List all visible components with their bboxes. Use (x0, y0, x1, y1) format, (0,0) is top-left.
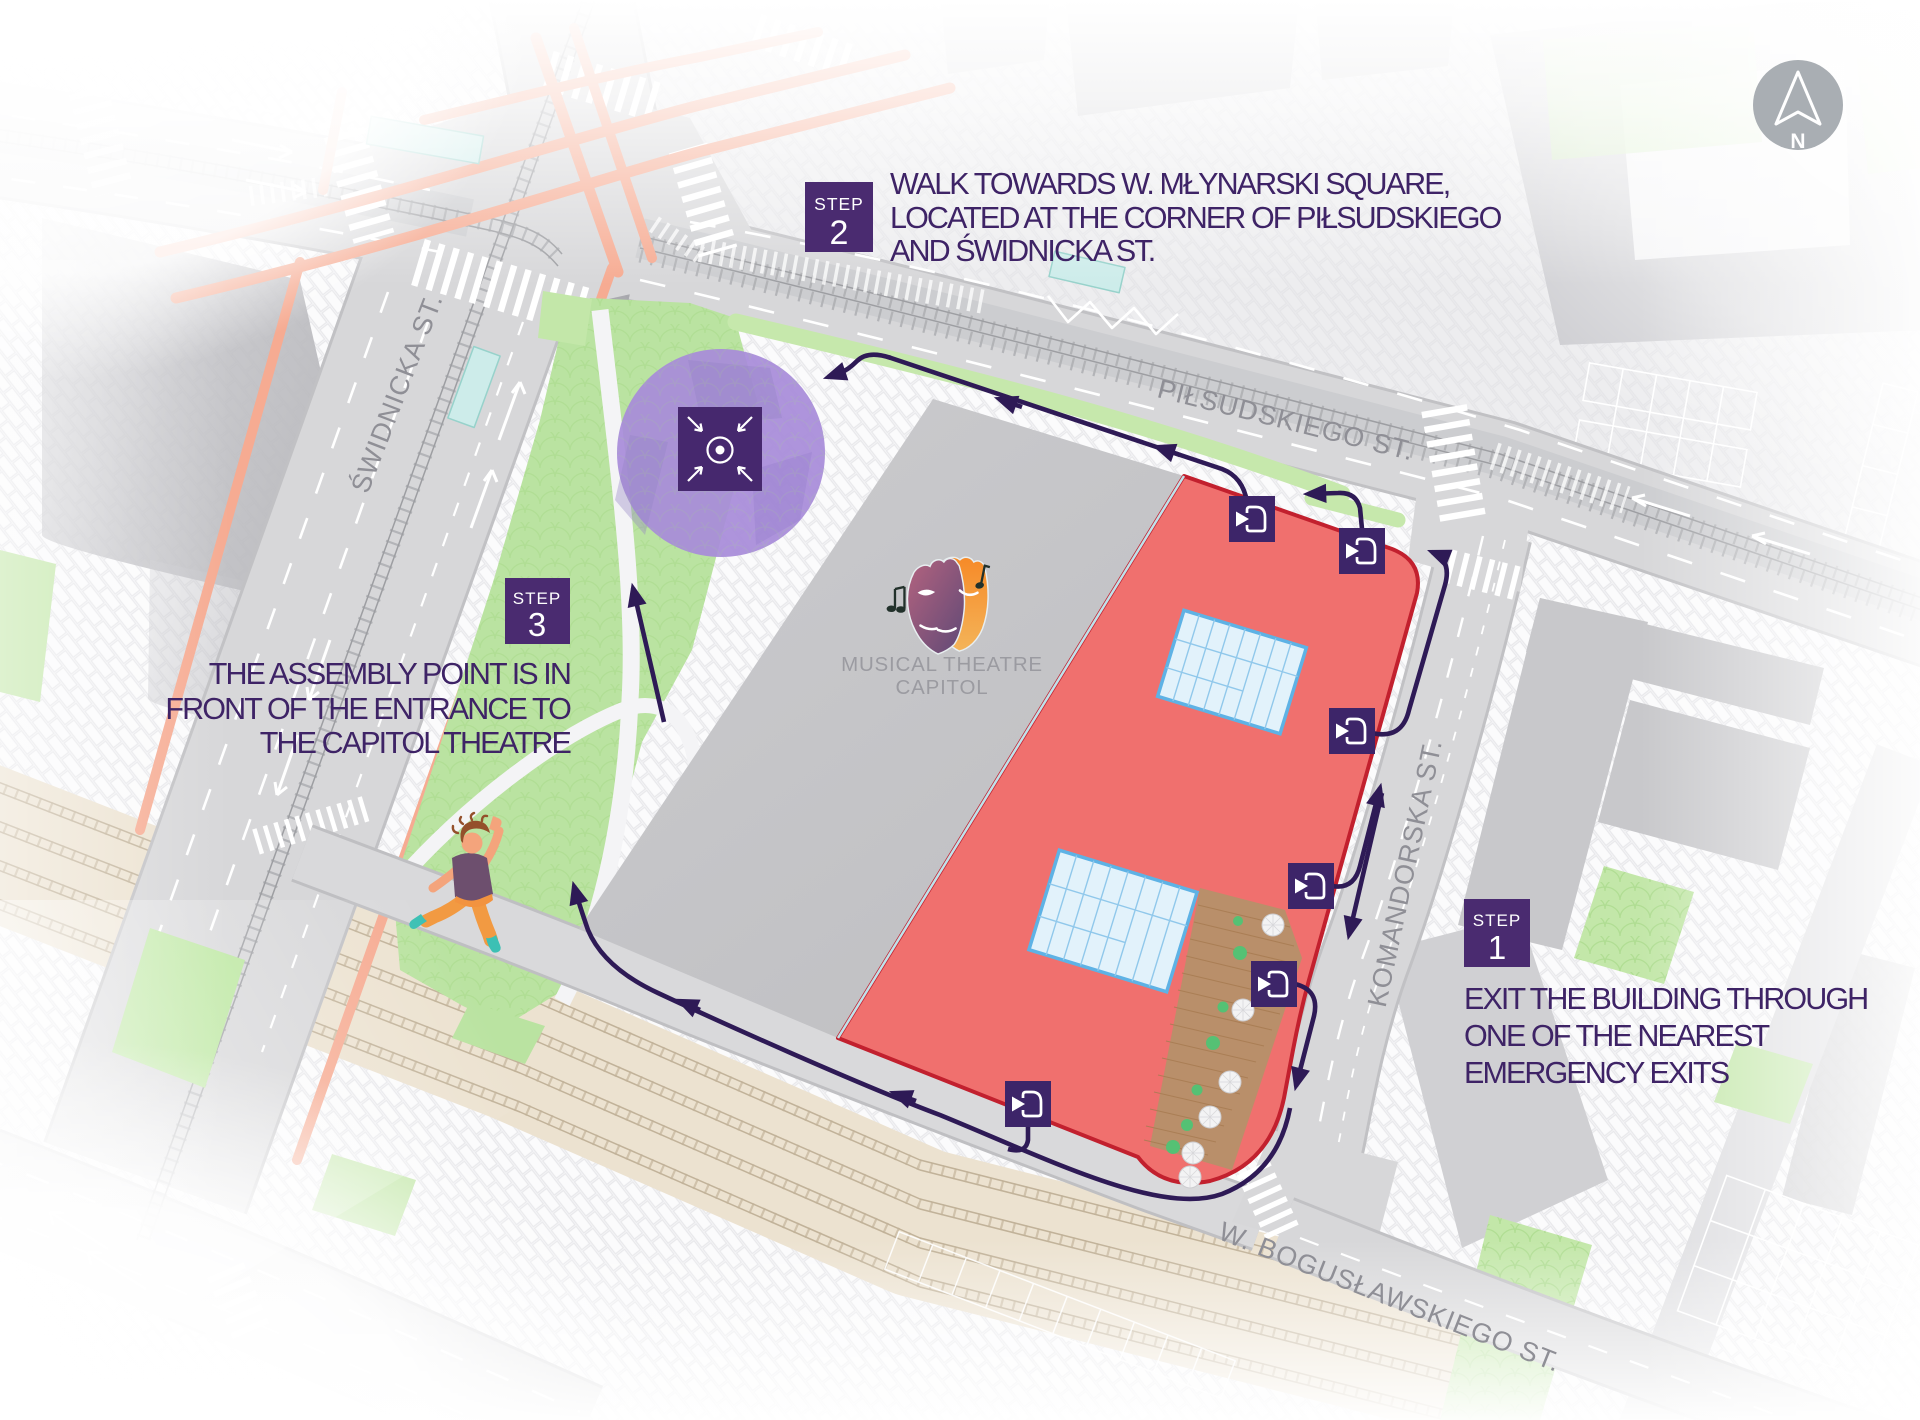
svg-text:STEP: STEP (814, 194, 864, 214)
svg-text:EMERGENCY EXITS: EMERGENCY EXITS (1464, 1056, 1729, 1090)
svg-text:STEP: STEP (1473, 911, 1521, 930)
svg-text:3: 3 (528, 606, 546, 643)
svg-text:CAPITOL: CAPITOL (896, 676, 989, 699)
svg-text:EXIT THE BUILDING THROUGH: EXIT THE BUILDING THROUGH (1464, 982, 1867, 1016)
svg-text:2: 2 (830, 214, 849, 252)
svg-text:FRONT OF THE ENTRANCE TO: FRONT OF THE ENTRANCE TO (165, 692, 571, 726)
svg-text:MUSICAL THEATRE: MUSICAL THEATRE (841, 653, 1043, 676)
svg-text:N: N (1790, 130, 1805, 153)
svg-text:ONE OF THE NEAREST: ONE OF THE NEAREST (1464, 1019, 1769, 1053)
svg-text:THE CAPITOL THEATRE: THE CAPITOL THEATRE (260, 726, 572, 760)
svg-text:THE ASSEMBLY POINT IS IN: THE ASSEMBLY POINT IS IN (209, 657, 570, 691)
svg-text:1: 1 (1488, 929, 1506, 966)
svg-text:WALK TOWARDS W. MŁYNARSKI SQUA: WALK TOWARDS W. MŁYNARSKI SQUARE, (890, 167, 1449, 201)
svg-text:LOCATED AT THE CORNER OF PIŁSU: LOCATED AT THE CORNER OF PIŁSUDSKIEGO (890, 201, 1502, 235)
svg-text:AND ŚWIDNICKA ST.: AND ŚWIDNICKA ST. (890, 232, 1154, 268)
